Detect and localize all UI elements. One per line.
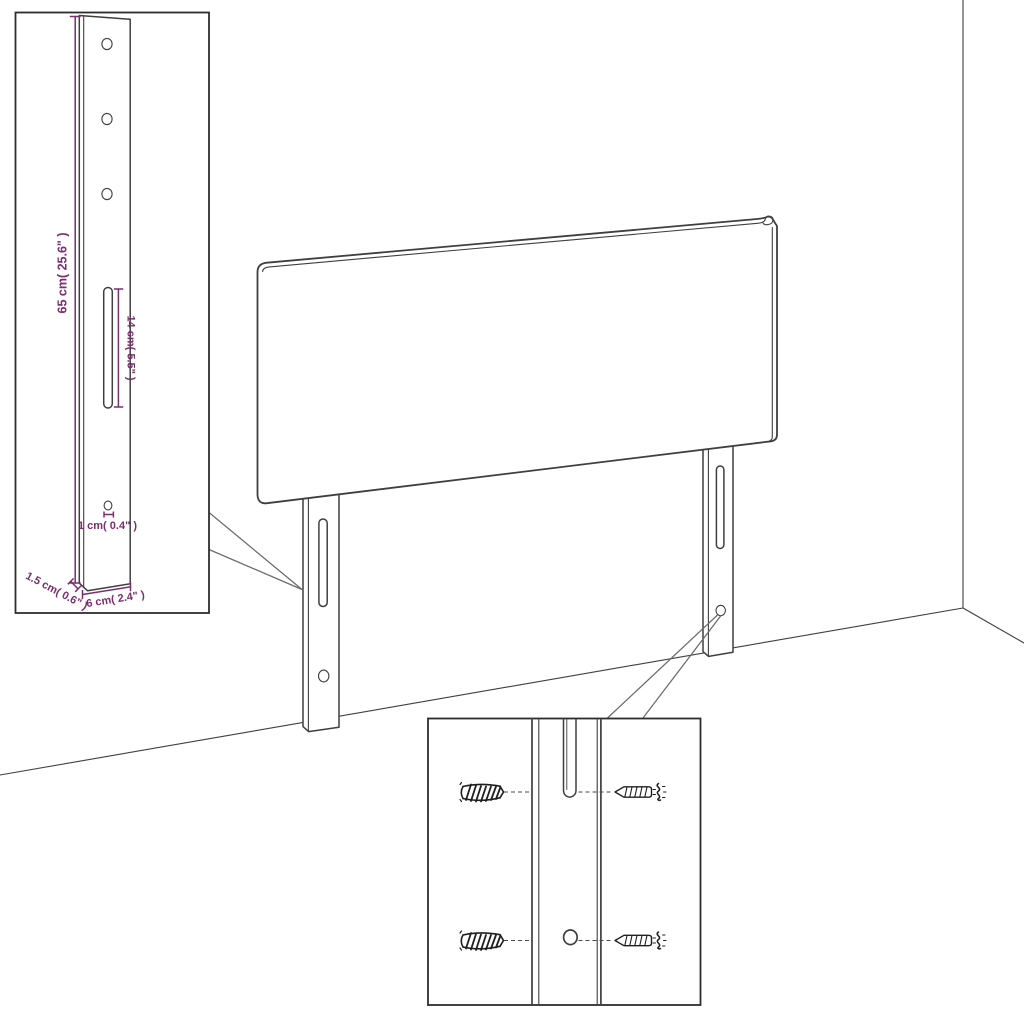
leader-line-leg-inset-top (209, 513, 302, 590)
dimension-slot-length-label: 14 cm( 5.5" ) (125, 315, 137, 380)
leg-detail-slot (104, 288, 113, 409)
leader-lines (209, 513, 721, 719)
leg-detail-inset: 65 cm( 25.6" ) 14 cm( 5.5" ) 1 cm( 0.4" … (16, 13, 210, 614)
headboard-panel (258, 216, 778, 503)
dimension-hole-diameter-label: 1 cm( 0.4" ) (78, 520, 137, 532)
dimension-height-label: 65 cm( 25.6" ) (56, 233, 70, 314)
mounting-detail-inset (428, 719, 701, 1006)
left-leg-slot (319, 519, 327, 607)
leader-line-leg-inset-bottom (209, 550, 302, 590)
floor-line-right (963, 608, 1024, 643)
left-mounting-leg (303, 491, 339, 732)
leader-line-mount-inset-right (643, 616, 721, 719)
diagram-canvas: 65 cm( 25.6" ) 14 cm( 5.5" ) 1 cm( 0.4" … (0, 0, 1024, 1024)
headboard-diagram: 65 cm( 25.6" ) 14 cm( 5.5" ) 1 cm( 0.4" … (0, 0, 1024, 1024)
headboard-outline (258, 217, 778, 504)
right-leg-slot (716, 466, 724, 549)
